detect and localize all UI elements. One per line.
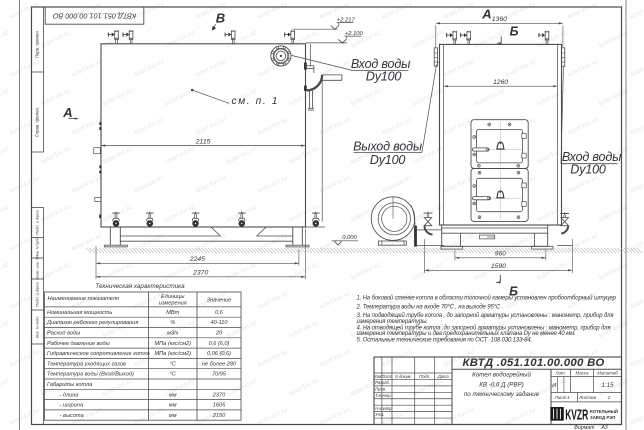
svg-text:0,6 (6,0): 0,6 (6,0) [209,341,230,347]
svg-text:Dy100: Dy100 [570,163,606,177]
svg-text:Значение: Значение [207,298,232,304]
svg-text:kotel-kvr.kz: kotel-kvr.kz [195,58,228,79]
svg-text:kotel-kvr.kz: kotel-kvr.kz [629,58,644,79]
svg-text:А: А [481,7,491,22]
svg-text:МПа (кгс/см2): МПа (кгс/см2) [154,351,191,357]
svg-text:А3: А3 [600,425,607,430]
svg-text:kotel-kvr.kz: kotel-kvr.kz [40,145,73,166]
svg-text:kotel-kvr.kz: kotel-kvr.kz [288,377,321,398]
svg-text:Подп. и дата: Подп. и дата [35,281,40,306]
svg-text:kotel-kvr.kz: kotel-kvr.kz [226,377,259,398]
svg-text:Техническая характеристика: Техническая характеристика [95,283,185,290]
svg-text:960: 960 [495,251,507,258]
svg-text:измерения: измерения [159,301,187,307]
svg-text:kotel-kvr.kz: kotel-kvr.kz [381,116,414,137]
svg-text:kotel-kvr.kz: kotel-kvr.kz [319,116,352,137]
svg-text:5. Остальные технические треб: 5. Остальные технические требования по О… [357,338,533,344]
svg-text:20: 20 [215,331,223,337]
svg-text:kotel-kvr.kz: kotel-kvr.kz [288,319,321,340]
svg-text:kotel-kvr.kz: kotel-kvr.kz [40,203,73,224]
svg-text:kotel-kvr.kz: kotel-kvr.kz [257,0,290,21]
svg-text:kotel-kvr.kz: kotel-kvr.kz [102,261,135,282]
svg-text:kotel-kvr.kz: kotel-kvr.kz [0,87,11,108]
svg-text:kotel-kvr.kz: kotel-kvr.kz [443,0,476,21]
svg-text:м3/ч: м3/ч [167,331,178,337]
svg-text:kotel-kvr.kz: kotel-kvr.kz [133,174,166,195]
svg-text:Листов: Листов [578,395,596,400]
svg-text:2150: 2150 [212,413,226,419]
svg-text:N докум.: N докум. [395,374,412,379]
svg-text:kotel-kvr.kz: kotel-kvr.kz [102,145,135,166]
svg-text:kotel-kvr.kz: kotel-kvr.kz [350,261,383,282]
svg-text:kotel-kvr.kz: kotel-kvr.kz [381,348,414,369]
svg-text:kotel-kvr.kz: kotel-kvr.kz [40,261,73,282]
svg-text:Наименование показателя: Наименование показателя [48,296,119,302]
svg-text:МВт: МВт [166,310,179,316]
svg-text:70/95: 70/95 [212,372,227,378]
svg-text:kotel-kvr.kz: kotel-kvr.kz [164,261,197,282]
svg-text:kotel-kvr.kz: kotel-kvr.kz [71,174,104,195]
svg-text:А: А [62,105,72,120]
svg-text:Лит.: Лит. [555,371,566,376]
svg-text:1. На боковой стенке котла в: 1. На боковой стенке котла в области топ… [357,295,617,302]
svg-text:kotel-kvr.kz: kotel-kvr.kz [133,232,166,253]
svg-text:ЗАВОД РЭП: ЗАВОД РЭП [590,415,615,420]
svg-text:kotel-kvr.kz: kotel-kvr.kz [288,145,321,166]
svg-text:kotel-kvr.kz: kotel-kvr.kz [319,290,352,311]
svg-text:kotel-kvr.kz: kotel-kvr.kz [0,203,11,224]
svg-text:Формат: Формат [574,425,595,430]
svg-text:kotel-kvr.kz: kotel-kvr.kz [133,0,166,21]
svg-text:Подп.: Подп. [419,374,430,379]
svg-text:kotel-kvr.kz: kotel-kvr.kz [71,232,104,253]
svg-text:Н.контр.: Н.контр. [375,406,392,411]
svg-text:Инв. N дубл: Инв. N дубл [36,236,40,258]
svg-text:kotel-kvr.kz: kotel-kvr.kz [629,116,644,137]
svg-text:Температура воды (Вход/Выход): Температура воды (Вход/Выход) [47,372,134,378]
svg-text:КВ -0,6 Д (РВР): КВ -0,6 Д (РВР) [479,381,523,388]
svg-text:°С: °С [170,361,177,367]
svg-text:Dy100: Dy100 [370,153,406,167]
svg-text:kotel-kvr.kz: kotel-kvr.kz [412,377,445,398]
svg-text:kotel-kvr.kz: kotel-kvr.kz [195,116,228,137]
svg-text:0,06 (0,6): 0,06 (0,6) [207,351,231,357]
svg-text:kotel-kvr.kz: kotel-kvr.kz [319,58,352,79]
svg-text:kotel-kvr.kz: kotel-kvr.kz [102,87,135,108]
svg-text:Масштаб: Масштаб [597,371,618,376]
svg-text:+2.217: +2.217 [337,17,356,23]
svg-text:Номинальная мощность: Номинальная мощность [47,310,112,316]
svg-text:40-110: 40-110 [210,320,228,326]
svg-text:Пров.: Пров. [375,386,386,391]
svg-text:kotel-kvr.kz: kotel-kvr.kz [164,29,197,50]
svg-text:Котел водогрейный: Котел водогрейный [472,372,531,379]
svg-text:Подп. и дата: Подп. и дата [35,209,40,234]
svg-text:kotel-kvr.kz: kotel-kvr.kz [102,377,135,398]
svg-text:kotel-kvr.kz: kotel-kvr.kz [319,406,352,427]
svg-text:Справ. примен.: Справ. примен. [35,107,40,137]
svg-text:Рабочее давление воды: Рабочее давление воды [47,341,110,347]
svg-text:kotel-kvr.kz: kotel-kvr.kz [226,261,259,282]
svg-text:kotel-kvr.kz: kotel-kvr.kz [40,29,73,50]
svg-text:kotel-kvr.kz: kotel-kvr.kz [9,174,42,195]
svg-text:Выход воды: Выход воды [353,139,423,153]
svg-text:kotel-kvr.kz: kotel-kvr.kz [412,261,445,282]
svg-text:+2.100: +2.100 [345,31,364,37]
svg-text:kotel-kvr.kz: kotel-kvr.kz [505,406,538,427]
svg-text:kotel-kvr.kz: kotel-kvr.kz [9,348,42,369]
svg-text:Масса: Масса [576,371,590,376]
svg-text:по техническому задание: по техническому задание [464,391,540,398]
svg-text:1:15: 1:15 [601,382,614,389]
svg-text:kotel-kvr.kz: kotel-kvr.kz [536,261,569,282]
svg-text:kotel-kvr.kz: kotel-kvr.kz [133,406,166,427]
svg-text:kotel-kvr.kz: kotel-kvr.kz [567,174,600,195]
svg-text:2115: 2115 [195,138,211,145]
svg-text:kotel-kvr.kz: kotel-kvr.kz [319,174,352,195]
svg-text:мм: мм [169,413,177,419]
svg-text:Разраб.: Разраб. [375,380,390,385]
svg-text:kotel-kvr.kz: kotel-kvr.kz [443,58,476,79]
svg-text:Диапазон рабочего регулировани: Диапазон рабочего регулирования [46,320,138,326]
svg-text:kotel-kvr.kz: kotel-kvr.kz [381,174,414,195]
svg-text:kotel-kvr.kz: kotel-kvr.kz [226,29,259,50]
svg-text:КОТЕЛЬНЫЙ: КОТЕЛЬНЫЙ [590,409,618,414]
svg-text:1260: 1260 [493,79,508,86]
svg-text:измерения температуры.: измерения температуры. [357,319,428,325]
svg-text:Лист: Лист [381,374,393,379]
svg-text:Единицы: Единицы [161,294,184,300]
svg-text:kotel-kvr.kz: kotel-kvr.kz [443,406,476,427]
svg-text:kotel-kvr.kz: kotel-kvr.kz [505,58,538,79]
svg-text:Утв.: Утв. [375,412,384,417]
svg-text:КВТД.051.101.00.000 ВО: КВТД.051.101.00.000 ВО [53,12,137,21]
svg-text:kotel-kvr.kz: kotel-kvr.kz [164,145,197,166]
svg-text:kotel-kvr.kz: kotel-kvr.kz [567,58,600,79]
svg-text:0.000: 0.000 [342,235,357,241]
svg-text:2245: 2245 [189,256,205,263]
svg-text:Дата: Дата [437,374,450,379]
svg-text:МПа (кгс/см2): МПа (кгс/см2) [154,341,191,347]
svg-text:2. Температура воды на входе: 2. Температура воды на входе 70°С , на в… [356,304,504,310]
svg-text:Т.контр.: Т.контр. [375,393,392,398]
svg-text:см. п. 1: см. п. 1 [232,96,279,107]
svg-text:2370: 2370 [192,270,208,277]
svg-text:Перв. примен.: Перв. примен. [35,30,40,58]
svg-text:kotel-kvr.kz: kotel-kvr.kz [257,348,290,369]
svg-text:мм: мм [169,403,177,409]
svg-text:kotel-kvr.kz: kotel-kvr.kz [164,319,197,340]
svg-text:1590: 1590 [491,263,506,270]
svg-text:kotel-kvr.kz: kotel-kvr.kz [0,145,11,166]
svg-text:kotel-kvr.kz: kotel-kvr.kz [133,116,166,137]
svg-text:kotel-kvr.kz: kotel-kvr.kz [381,232,414,253]
svg-text:КВТД .051.101.00.000 ВО: КВТД .051.101.00.000 ВО [462,357,604,369]
svg-text:kotel-kvr.kz: kotel-kvr.kz [133,58,166,79]
svg-text:kotel-kvr.kz: kotel-kvr.kz [257,232,290,253]
svg-text:0,6: 0,6 [215,310,224,316]
svg-text:Инв. N подл.: Инв. N подл. [35,316,40,339]
svg-text:Габариты котла: Габариты котла [47,382,92,388]
svg-text:kotel-kvr.kz: kotel-kvr.kz [629,290,644,311]
svg-text:Гидравлическое сопротивление к: Гидравлическое сопротивление котла [47,351,150,357]
svg-text:kotel-kvr.kz: kotel-kvr.kz [567,0,600,21]
svg-text:1360: 1360 [492,16,507,23]
svg-text:kotel-kvr.kz: kotel-kvr.kz [567,232,600,253]
svg-text:Температура уходящих газов: Температура уходящих газов [47,361,126,367]
svg-text:В: В [216,11,225,26]
svg-text:kotel-kvr.kz: kotel-kvr.kz [350,87,383,108]
svg-text:1605: 1605 [213,403,226,409]
svg-text:2: 2 [607,395,611,400]
svg-text:1: 1 [567,395,570,400]
svg-text:kotel-kvr.kz: kotel-kvr.kz [0,377,11,398]
svg-text:kotel-kvr.kz: kotel-kvr.kz [0,319,11,340]
svg-text:kotel-kvr.kz: kotel-kvr.kz [567,116,600,137]
svg-text:Б: Б [510,25,519,39]
svg-text:kotel-kvr.kz: kotel-kvr.kz [257,116,290,137]
svg-text:kotel-kvr.kz: kotel-kvr.kz [629,0,644,21]
svg-text:%: % [170,320,175,326]
svg-text:kotel-kvr.kz: kotel-kvr.kz [629,348,644,369]
svg-text:kotel-kvr.kz: kotel-kvr.kz [381,0,414,21]
svg-text:KVZR: KVZR [565,407,588,424]
svg-text:kotel-kvr.kz: kotel-kvr.kz [9,406,42,427]
svg-text:- ширина: - ширина [60,403,84,409]
svg-text:kotel-kvr.kz: kotel-kvr.kz [257,406,290,427]
svg-text:kotel-kvr.kz: kotel-kvr.kz [505,0,538,21]
svg-text:°С: °С [170,372,177,378]
svg-text:Расход воды: Расход воды [47,331,80,337]
svg-text:kotel-kvr.kz: kotel-kvr.kz [0,261,11,282]
svg-text:Dy100: Dy100 [366,70,402,84]
svg-text:kotel-kvr.kz: kotel-kvr.kz [319,348,352,369]
svg-text:kotel-kvr.kz: kotel-kvr.kz [226,319,259,340]
svg-text:kotel-kvr.kz: kotel-kvr.kz [629,174,644,195]
svg-text:2370: 2370 [212,392,226,398]
svg-text:kotel-kvr.kz: kotel-kvr.kz [9,0,42,21]
svg-text:мм: мм [169,392,177,398]
svg-text:kotel-kvr.kz: kotel-kvr.kz [257,290,290,311]
svg-text:измерения температуры и два пр: измерения температуры и два предохраните… [357,331,576,337]
svg-text:kotel-kvr.kz: kotel-kvr.kz [9,58,42,79]
svg-text:kotel-kvr.kz: kotel-kvr.kz [350,203,383,224]
svg-text:- длина: - длина [60,392,79,398]
svg-text:Взам. инв. N: Взам. инв. N [36,257,40,279]
svg-text:kotel-kvr.kz: kotel-kvr.kz [288,261,321,282]
svg-text:kotel-kvr.kz: kotel-kvr.kz [195,174,228,195]
svg-text:не более 280: не более 280 [202,361,237,367]
svg-text:kotel-kvr.kz: kotel-kvr.kz [474,29,507,50]
svg-text:kotel-kvr.kz: kotel-kvr.kz [257,58,290,79]
svg-text:kotel-kvr.kz: kotel-kvr.kz [0,29,11,50]
svg-text:kotel-kvr.kz: kotel-kvr.kz [474,87,507,108]
svg-text:kotel-kvr.kz: kotel-kvr.kz [226,145,259,166]
svg-text:kotel-kvr.kz: kotel-kvr.kz [629,232,644,253]
svg-text:kotel-kvr.kz: kotel-kvr.kz [536,87,569,108]
svg-text:kotel-kvr.kz: kotel-kvr.kz [536,29,569,50]
svg-text:- высота: - высота [60,413,84,419]
svg-text:Лист: Лист [554,395,567,400]
svg-text:kotel-kvr.kz: kotel-kvr.kz [629,406,644,427]
svg-text:kotel-kvr.kz: kotel-kvr.kz [257,174,290,195]
svg-text:kotel-kvr.kz: kotel-kvr.kz [71,58,104,79]
